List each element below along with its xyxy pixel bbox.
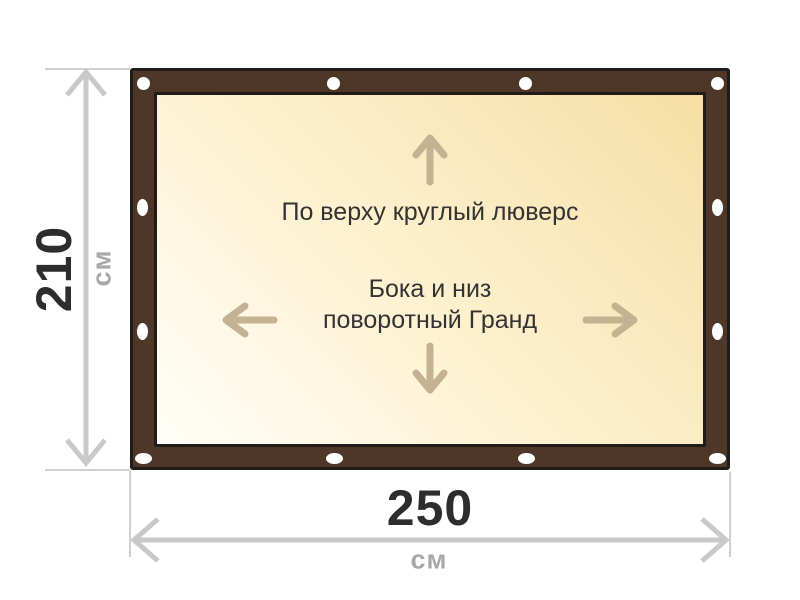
width-value: 250	[387, 479, 473, 537]
grommet-icon	[518, 453, 535, 464]
grommet-icon	[137, 77, 150, 90]
grommet-icon	[327, 77, 340, 90]
product-dimension-diagram: По верху круглый люверс Бока и низ повор…	[0, 0, 800, 600]
width-extension-line-right	[729, 472, 731, 557]
height-value: 210	[25, 226, 83, 312]
height-extension-line-bottom	[45, 469, 130, 471]
tarp-frame	[130, 68, 730, 470]
sides-note-line1: Бока и низ	[130, 274, 730, 305]
arrow-up-icon	[412, 132, 448, 186]
grommet-icon	[709, 453, 726, 464]
sides-note-line2: поворотный Гранд	[130, 305, 730, 336]
grommet-icon	[519, 77, 532, 90]
width-unit: см	[411, 545, 448, 576]
top-edge-note: По верху круглый люверс	[130, 197, 730, 228]
grommet-icon	[326, 453, 343, 464]
grommet-icon	[135, 453, 152, 464]
sides-note: Бока и низ поворотный Гранд	[130, 274, 730, 336]
height-unit: см	[87, 250, 118, 287]
arrow-down-icon	[412, 342, 448, 396]
grommet-icon	[711, 77, 724, 90]
